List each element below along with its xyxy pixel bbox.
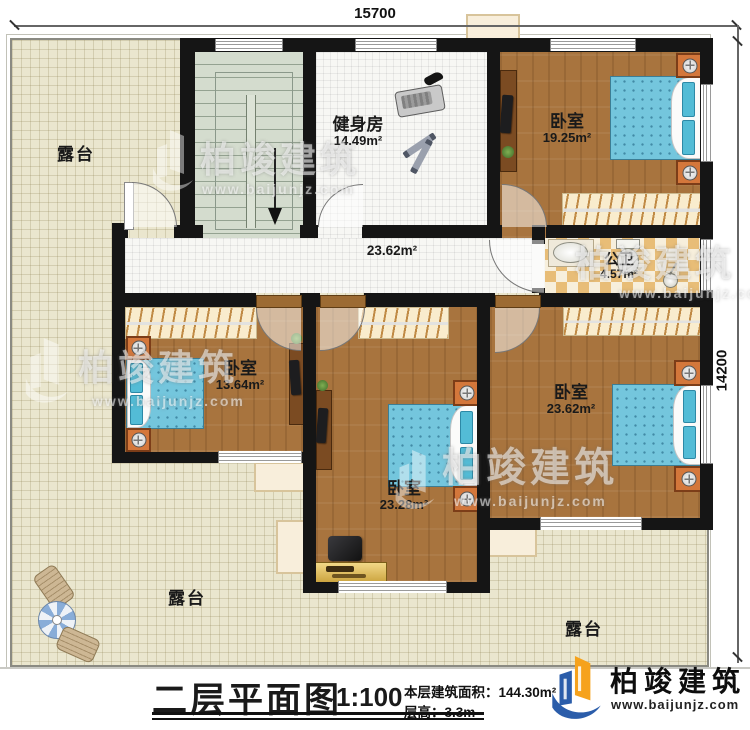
plant-icon — [317, 380, 328, 391]
closet-bedroom-center — [358, 307, 449, 339]
door-leaf — [320, 295, 366, 308]
tv-icon — [328, 536, 362, 561]
stair-arrow-head — [268, 208, 282, 225]
brand-logo-icon — [546, 654, 608, 724]
nightstand — [126, 428, 151, 452]
room-area: 23.62m² — [526, 402, 616, 417]
closet-bedroom-right — [563, 307, 702, 336]
floor-height-label: 层高： — [404, 705, 445, 720]
bed-right — [612, 384, 702, 466]
room-area: 14.49m² — [313, 134, 403, 149]
wall — [487, 38, 500, 238]
door-leaf — [256, 295, 302, 308]
floor-height-line: 层高：3.3m — [404, 701, 475, 721]
window — [701, 84, 713, 162]
lamp-icon — [682, 472, 697, 487]
nightstand — [126, 336, 151, 360]
wall — [364, 293, 495, 307]
lamp-icon — [460, 492, 475, 507]
watermark-logo-icon — [150, 128, 196, 194]
wall — [174, 225, 203, 238]
wall — [112, 223, 125, 463]
window — [540, 517, 642, 530]
room-area: 4.57m² — [586, 268, 652, 282]
window — [550, 39, 636, 51]
brand-name: 柏竣建筑 — [610, 660, 746, 700]
bed-top-right — [610, 76, 702, 160]
wall — [303, 293, 316, 593]
watermark-logo-icon — [392, 448, 438, 512]
wall — [539, 293, 713, 307]
wall — [300, 225, 318, 238]
corridor-floor — [125, 238, 532, 293]
room-area: 13.64m² — [195, 378, 285, 393]
wall — [477, 293, 490, 593]
room-area: 19.25m² — [522, 131, 612, 146]
room-name: 卧室 — [522, 113, 612, 131]
closet-bedroom-top-right — [562, 193, 702, 227]
lamp-icon — [683, 58, 698, 73]
stair-rail — [246, 95, 256, 228]
flower-box-right — [487, 527, 537, 557]
terrace-label: 露台 — [52, 140, 100, 165]
watermark-logo-icon — [22, 336, 72, 406]
flower-box-left — [254, 462, 307, 492]
room-label-bedroom-left: 卧室 13.64m² — [195, 360, 285, 393]
door-leaf — [495, 295, 541, 308]
lamp-icon — [682, 366, 697, 381]
wall — [362, 225, 502, 238]
window — [215, 39, 283, 51]
lamp-icon — [131, 341, 146, 356]
terrace-label: 露台 — [560, 615, 608, 640]
dimension-width-label: 15700 — [345, 5, 405, 22]
brand-website: www.baijunjz.com — [611, 697, 739, 712]
floor-area-label: 本层建筑面积： — [404, 685, 499, 700]
dimension-height-label: 14200 — [714, 341, 731, 401]
room-name: 公卫 — [586, 252, 652, 268]
window — [701, 239, 713, 291]
room-label-bedroom-right: 卧室 23.62m² — [526, 384, 616, 417]
window — [355, 39, 437, 51]
lamp-icon — [460, 386, 475, 401]
wall — [112, 293, 256, 307]
lamp-icon — [683, 165, 698, 180]
bed-left — [126, 358, 204, 429]
room-label-bedroom-top-right: 卧室 19.25m² — [522, 113, 612, 146]
sink-icon — [553, 242, 588, 263]
window — [701, 385, 713, 464]
corridor-area-label: 23.62m² — [360, 243, 424, 259]
plant-icon — [502, 146, 514, 158]
room-label-bathroom: 公卫 4.57m² — [586, 252, 652, 282]
room-name: 卧室 — [526, 384, 616, 402]
plan-scale: 1:100 — [336, 682, 403, 713]
wall — [546, 225, 713, 238]
lamp-icon — [131, 433, 146, 448]
floor-area-line: 本层建筑面积：144.30m² — [404, 681, 556, 701]
dimension-line-top — [14, 25, 737, 27]
terrace-label: 露台 — [163, 584, 211, 609]
room-name: 健身房 — [313, 116, 403, 134]
stair-arrow-line — [274, 148, 276, 210]
floor-plan-sheet: 健身房 14.49m² 卧室 19.25m² 公卫 4.57m² 23.62m²… — [0, 0, 750, 730]
dimension-line-right — [737, 25, 739, 663]
plan-title: 二层平面图 — [152, 672, 342, 723]
floor-height-value: 3.3m — [445, 705, 476, 720]
window — [218, 451, 302, 463]
room-label-gym: 健身房 14.49m² — [313, 116, 403, 149]
room-name: 卧室 — [195, 360, 285, 378]
window — [338, 581, 447, 593]
closet-bedroom-left — [125, 307, 257, 339]
